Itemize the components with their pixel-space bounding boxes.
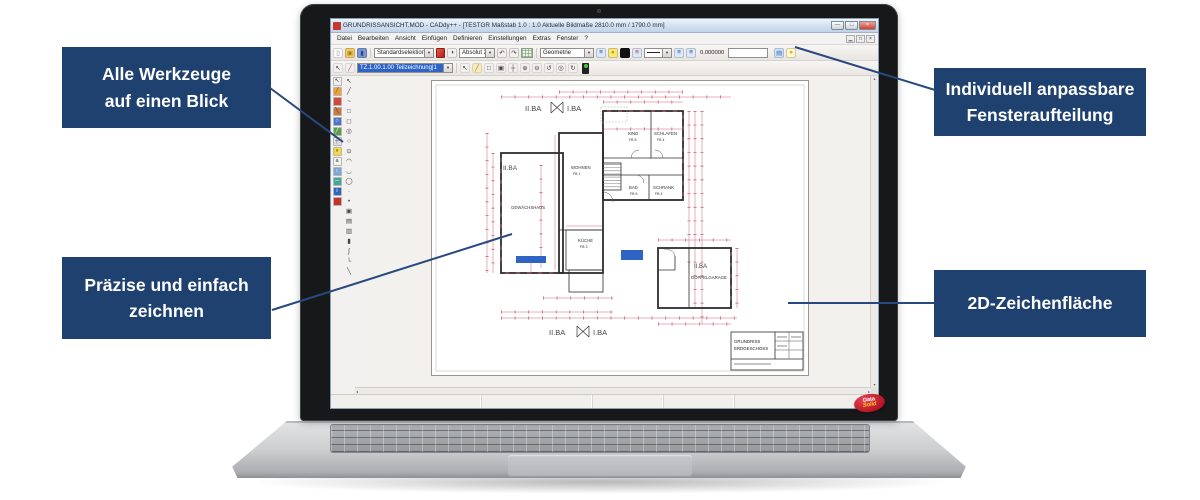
arc-tool[interactable]: ◠ — [345, 157, 354, 166]
chevron-down-icon[interactable]: ▾ — [443, 64, 452, 72]
floor-plan[interactable]: II.BA I.BA II.BA I.BA II.BA II.BA WOHNEN… — [431, 80, 809, 376]
chevron-down-icon[interactable]: ▾ — [662, 49, 671, 57]
zoom-previous-icon[interactable]: ↺ — [544, 63, 554, 73]
room-label: KÜCHE — [578, 238, 593, 243]
layer-move-icon[interactable]: ≡ — [632, 48, 642, 58]
callout-text-line: Individuell anpassbare — [946, 76, 1135, 102]
room-sub: FB 4 — [657, 138, 664, 142]
section-label: II.BA — [549, 328, 565, 337]
zoom-tool[interactable]: ○ — [333, 117, 342, 126]
laptop-trackpad — [508, 455, 692, 477]
callout-drawing: Präzise und einfachzeichnen — [62, 257, 271, 339]
app-menubar: DateiBearbeitenAnsichtEinfügenDefinieren… — [331, 33, 878, 45]
mdi-restore-button[interactable]: □ — [856, 35, 865, 43]
point-mark-tool[interactable]: • — [345, 197, 354, 206]
close-button[interactable]: × — [859, 21, 876, 30]
info-tool[interactable]: i — [333, 187, 342, 196]
layer-group-value: Geometrie — [541, 49, 584, 57]
circle-radius-tool[interactable]: ○ — [345, 137, 354, 146]
copy-shape-tool[interactable]: ▣ — [345, 207, 354, 216]
brush-tool[interactable] — [333, 97, 342, 106]
menu-item[interactable]: Einfügen — [419, 35, 450, 42]
color-swatch-black-icon[interactable] — [620, 48, 630, 58]
zoom-in-icon[interactable]: ⊕ — [520, 63, 530, 73]
app-titlebar[interactable]: GRUNDRISSANSICHT.MOD - CADdy++ - [TESTGR… — [331, 19, 878, 33]
layer-group-combo[interactable]: Geometrie ▾ — [540, 48, 594, 58]
layer-z-icon[interactable]: ≡ — [674, 48, 684, 58]
pointer-icon[interactable]: ↖ — [333, 63, 343, 73]
spline-tool[interactable]: ∫ — [345, 247, 354, 256]
menu-item[interactable]: ? — [581, 35, 591, 42]
cad-application-window: GRUNDRISSANSICHT.MOD - CADdy++ - [TESTGR… — [330, 18, 879, 409]
line-style-preview — [645, 49, 662, 57]
coordinate-combo-value: Absolut 2D — [460, 49, 485, 57]
pen-red-icon[interactable]: ╱ — [345, 63, 355, 73]
callout-text-line: Fensteraufteilung — [967, 102, 1114, 128]
selection-filter-button[interactable] — [436, 48, 445, 58]
bulb-icon[interactable]: ● — [786, 48, 796, 58]
menu-item[interactable]: Extras — [530, 35, 554, 42]
mdi-minimize-button[interactable]: ▁ — [846, 35, 855, 43]
callout-text-line: 2D-Zeichenfläche — [968, 290, 1113, 316]
selection-mode-combo[interactable]: Standardselektion ▾ — [374, 48, 434, 58]
green-pen-tool[interactable]: ╱ — [333, 127, 342, 136]
status-bar: Data Solid — [331, 394, 878, 408]
chevron-down-icon[interactable]: ▾ — [584, 49, 593, 57]
pen-yellow-icon[interactable]: ╱ — [472, 63, 482, 73]
pencil-tool[interactable]: ╱ — [333, 87, 342, 96]
room-label: SCHLAFEN — [654, 131, 677, 136]
scroll-up-arrow[interactable]: ▴ — [873, 76, 875, 81]
menu-item[interactable]: Ansicht — [392, 35, 419, 42]
room-label: DOPPELGARAGE — [691, 275, 727, 280]
menu-item[interactable]: Fenster — [554, 35, 582, 42]
titleblock-line1: GRUNDRISS — [734, 339, 760, 344]
coordinate-mode-icon[interactable]: ◑ — [447, 48, 457, 58]
traffic-light-icon[interactable] — [582, 63, 589, 74]
room-sub: FB 3 — [580, 245, 587, 249]
menu-item[interactable]: Einstellungen — [485, 35, 529, 42]
callout-text-line: Alle Werkzeuge — [102, 61, 231, 87]
undo-button[interactable]: ↶ — [497, 48, 507, 58]
laptop-screen: GRUNDRISSANSICHT.MOD - CADdy++ - [TESTGR… — [330, 18, 879, 409]
pen-layer-icon[interactable]: ≡ — [596, 48, 606, 58]
room-sub: FB 1 — [573, 172, 580, 176]
line-width-value: 0.000000 — [698, 50, 726, 56]
layer-z2-icon[interactable]: ≡ — [686, 48, 696, 58]
corner-tool[interactable]: └ — [345, 257, 354, 266]
menu-item[interactable]: Definieren — [450, 35, 485, 42]
callout-text-line: Präzise und einfach — [84, 272, 248, 298]
drawing-canvas[interactable]: II.BA I.BA II.BA I.BA II.BA II.BA WOHNEN… — [355, 76, 871, 387]
callout-tools: Alle Werkzeugeauf einen Blick — [62, 47, 271, 128]
mdi-close-button[interactable]: × — [866, 35, 875, 43]
column-tool[interactable]: ▮ — [345, 237, 354, 246]
drawing-toolbar: ↖╱ TZ.1.00.1.00 Teilzeichnung|1 ▾ ↖╱□▣┼⊕… — [331, 61, 878, 76]
drawing-sheet[interactable]: II.BA I.BA II.BA I.BA II.BA II.BA WOHNEN… — [431, 80, 809, 376]
attribute-field[interactable] — [728, 48, 768, 58]
vertical-scrollbar[interactable]: ▴ ▾ — [870, 76, 878, 387]
toolbar-separator — [370, 48, 371, 58]
redo-button[interactable]: ↷ — [509, 48, 519, 58]
hatch-tool[interactable]: ▤ — [345, 217, 354, 226]
room-label: WOHNEN — [571, 165, 591, 170]
main-toolbar: ▯▣▮ Standardselektion ▾ ◑ Absolut 2D ▾ ↶… — [331, 45, 878, 61]
grid-icon[interactable] — [521, 48, 533, 58]
maximize-button[interactable]: □ — [845, 21, 858, 30]
room-label: BAD — [629, 185, 638, 190]
move-tool[interactable]: ↕ — [333, 167, 342, 176]
point-tool[interactable]: · — [345, 187, 354, 196]
zoom-all-icon[interactable]: ◎ — [556, 63, 566, 73]
callout-window-layout: Individuell anpassbareFensteraufteilung — [934, 68, 1146, 136]
room-label: KIND — [628, 131, 638, 136]
scroll-left-arrow[interactable]: ◂ — [356, 389, 358, 394]
wing-label: II.BA — [503, 165, 518, 172]
section-label: I.BA — [593, 328, 607, 337]
open-file-icon[interactable]: ▣ — [345, 48, 355, 58]
geo-select-tool[interactable]: ↖ — [345, 77, 354, 86]
part-drawing-value: TZ.1.00.1.00 Teilzeichnung|1 — [358, 64, 443, 72]
snap-tool[interactable]: ┼ — [333, 137, 342, 146]
hatch-pattern-tool[interactable]: ▥ — [345, 227, 354, 236]
draw-pointer-icon[interactable]: ↖ — [460, 63, 470, 73]
status-cell — [593, 395, 664, 408]
laptop-base — [230, 421, 968, 478]
app-icon — [333, 22, 341, 30]
room-label: SCHRANK — [653, 185, 674, 190]
chevron-down-icon[interactable]: ▾ — [485, 49, 494, 57]
callout-2d-canvas: 2D-Zeichenfläche — [934, 270, 1146, 337]
rectangle-tool[interactable]: □ — [345, 107, 354, 116]
webcam-dot — [597, 9, 601, 13]
circle-2point-tool[interactable]: ⊙ — [345, 147, 354, 156]
titleblock-line2: ERDGESCHOSS — [734, 346, 768, 351]
room-sub: FB 4 — [655, 192, 662, 196]
light-tool[interactable]: ● — [333, 147, 342, 156]
text-tool[interactable]: a — [333, 157, 342, 166]
knife-tool[interactable]: ╲ — [333, 107, 342, 116]
chamfer-tool[interactable]: ╲ — [345, 267, 354, 276]
line-tool[interactable]: ╱ — [345, 87, 354, 96]
ellipse-tool[interactable]: ◯ — [345, 177, 354, 186]
toolbar-separator — [456, 63, 457, 73]
app-client-area: ↖╱╲○╱┼●a↕─i ↖╱~□◻◎○⊙◠◡◯·•▣▤▥▮∫└╲ — [331, 76, 878, 394]
arc-3point-tool[interactable]: ◡ — [345, 167, 354, 176]
folder-blue-icon[interactable]: ▤ — [774, 48, 784, 58]
room-label: GEWÄCHSHAUS — [511, 205, 545, 210]
menu-item[interactable]: Bearbeiten — [355, 35, 392, 42]
toolbar-separator — [536, 48, 537, 58]
laptop-screen-bezel: GRUNDRISSANSICHT.MOD - CADdy++ - [TESTGR… — [300, 4, 898, 421]
part-drawing-combo[interactable]: TZ.1.00.1.00 Teilzeichnung|1 ▾ — [357, 63, 453, 73]
measure-tool[interactable]: ─ — [333, 177, 342, 186]
coordinate-combo[interactable]: Absolut 2D ▾ — [459, 48, 495, 58]
scroll-right-arrow[interactable]: ▸ — [868, 389, 870, 394]
status-cell — [482, 395, 593, 408]
horizontal-scrollbar[interactable]: ◂ ▸ — [355, 387, 871, 394]
new-file-icon[interactable]: ▯ — [333, 48, 343, 58]
pan-icon[interactable]: ┼ — [508, 63, 518, 73]
section-label: I.BA — [567, 104, 581, 113]
select-tool[interactable]: ↖ — [333, 77, 342, 86]
status-cell — [664, 395, 735, 408]
laptop-keyboard — [330, 424, 870, 453]
rounded-rect-tool[interactable]: ◻ — [345, 117, 354, 126]
minimize-button[interactable]: — — [831, 21, 844, 30]
chevron-down-icon[interactable]: ▾ — [424, 49, 433, 57]
garage-wing-label: II.BA — [694, 264, 707, 270]
status-cell — [331, 395, 482, 408]
selection-combo-value: Standardselektion — [375, 49, 424, 57]
room-sub: FB 8 — [629, 138, 636, 142]
eraser-tool[interactable] — [333, 197, 342, 206]
callout-text-line: auf einen Blick — [105, 88, 229, 114]
zoom-out-icon[interactable]: ⊖ — [532, 63, 542, 73]
line-style-combo[interactable]: ▾ — [644, 48, 672, 58]
circle-center-tool[interactable]: ◎ — [345, 127, 354, 136]
highlight-bulb-icon[interactable]: ● — [608, 48, 618, 58]
zoom-window-icon[interactable]: ▣ — [496, 63, 506, 73]
freehand-tool[interactable]: ~ — [345, 97, 354, 106]
select-window-icon[interactable]: □ — [484, 63, 494, 73]
window-title: GRUNDRISSANSICHT.MOD - CADdy++ - [TESTGR… — [343, 22, 829, 29]
section-label: II.BA — [525, 104, 541, 113]
save-file-icon[interactable]: ▮ — [357, 48, 367, 58]
callout-text-line: zeichnen — [129, 298, 204, 324]
redraw-icon[interactable]: ↻ — [568, 63, 578, 73]
room-sub: FB 6 — [630, 192, 637, 196]
menu-item[interactable]: Datei — [334, 35, 355, 42]
